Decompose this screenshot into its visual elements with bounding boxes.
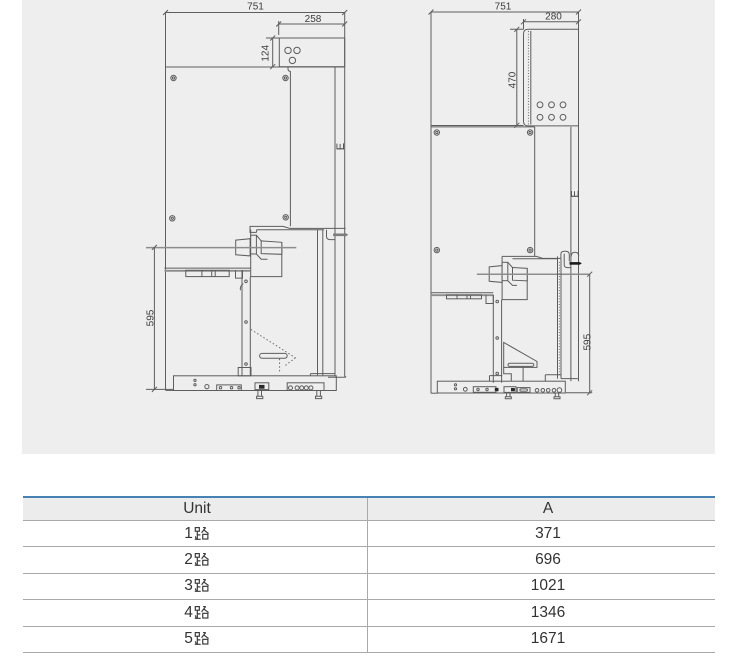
svg-text:595: 595 [583, 333, 594, 350]
svg-text:751: 751 [247, 2, 264, 13]
svg-text:595: 595 [145, 309, 156, 326]
svg-text:280: 280 [545, 12, 562, 23]
svg-text:E: E [335, 143, 347, 150]
svg-text:124: 124 [261, 45, 272, 62]
svg-text:751: 751 [495, 1, 512, 12]
svg-text:E: E [570, 190, 582, 197]
svg-text:258: 258 [305, 14, 322, 25]
svg-text:470: 470 [508, 71, 519, 88]
